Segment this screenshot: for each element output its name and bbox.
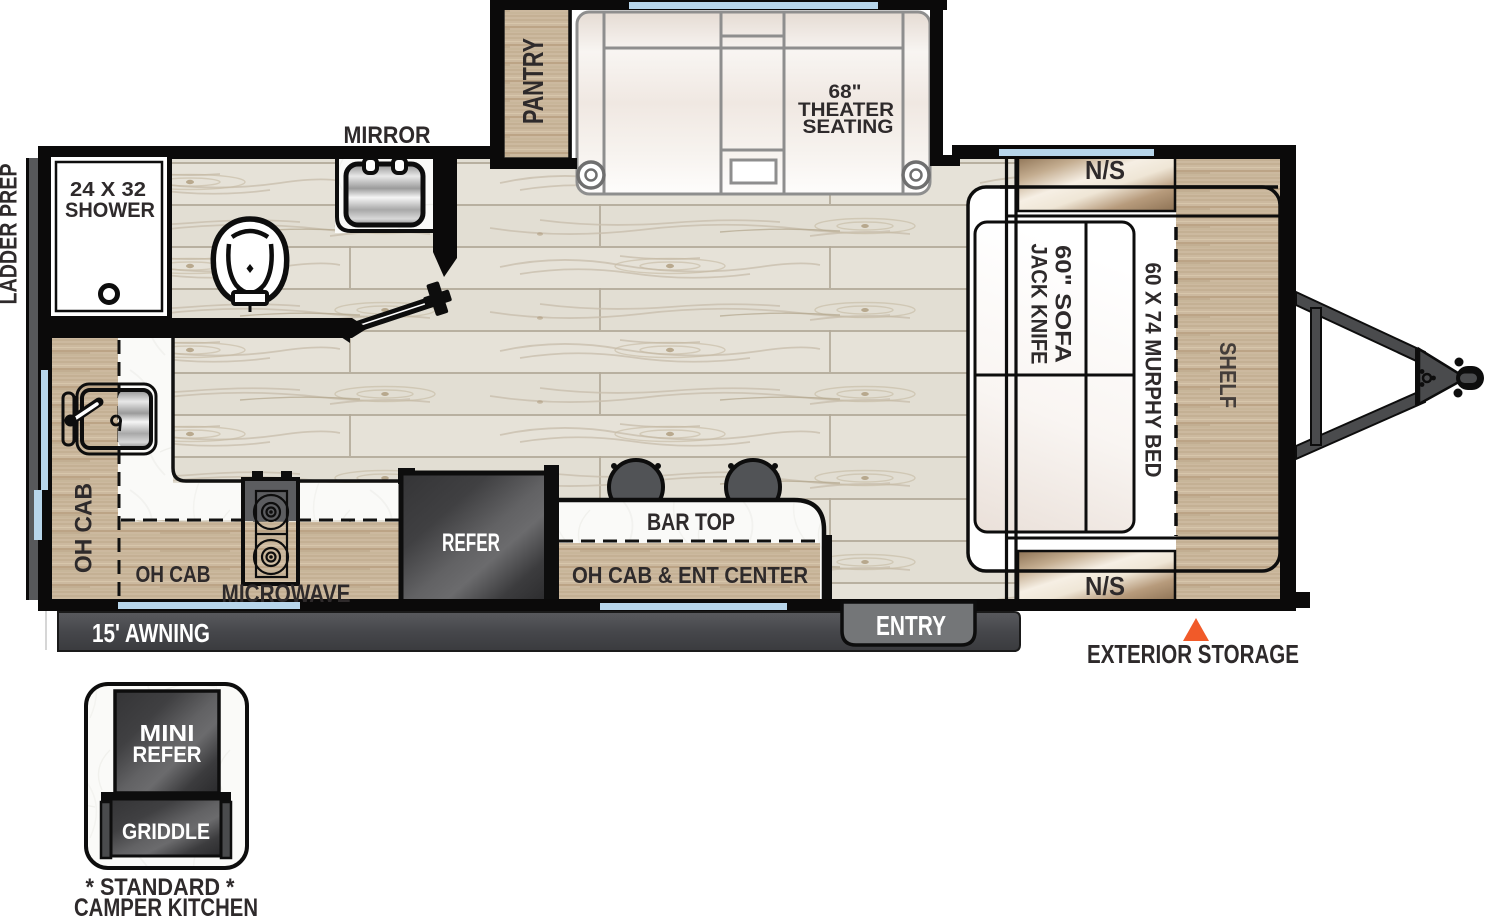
svg-text:ENTRY: ENTRY — [876, 610, 946, 641]
svg-text:OH CAB: OH CAB — [136, 561, 211, 587]
svg-text:MIRROR: MIRROR — [344, 122, 431, 149]
svg-text:EXTERIOR STORAGE: EXTERIOR STORAGE — [1087, 639, 1299, 669]
svg-text:GRIDDLE: GRIDDLE — [122, 819, 210, 844]
svg-text:SHOWER: SHOWER — [65, 199, 155, 222]
svg-text:CAMPER KITCHEN: CAMPER KITCHEN — [74, 894, 258, 918]
svg-text:REFER: REFER — [133, 742, 202, 767]
svg-text:SEATING: SEATING — [803, 117, 894, 138]
svg-text:OH CAB: OH CAB — [71, 483, 98, 573]
svg-text:60" SOFA: 60" SOFA — [1051, 245, 1076, 363]
svg-text:JACK KNIFE: JACK KNIFE — [1027, 244, 1052, 365]
svg-text:MICROWAVE: MICROWAVE — [222, 580, 351, 608]
svg-text:24 X 32: 24 X 32 — [70, 179, 146, 201]
svg-text:60 X 74 MURPHY BED: 60 X 74 MURPHY BED — [1141, 263, 1166, 478]
svg-text:PANTRY: PANTRY — [518, 38, 550, 124]
svg-text:N/S: N/S — [1085, 155, 1125, 185]
svg-text:SHELF: SHELF — [1215, 342, 1241, 408]
svg-text:LADDER PREP: LADDER PREP — [0, 164, 23, 305]
svg-text:N/S: N/S — [1085, 571, 1125, 601]
svg-text:BAR TOP: BAR TOP — [647, 509, 735, 536]
svg-text:OH CAB & ENT CENTER: OH CAB & ENT CENTER — [572, 562, 808, 588]
svg-text:REFER: REFER — [442, 529, 500, 557]
svg-text:15' AWNING: 15' AWNING — [92, 618, 210, 648]
